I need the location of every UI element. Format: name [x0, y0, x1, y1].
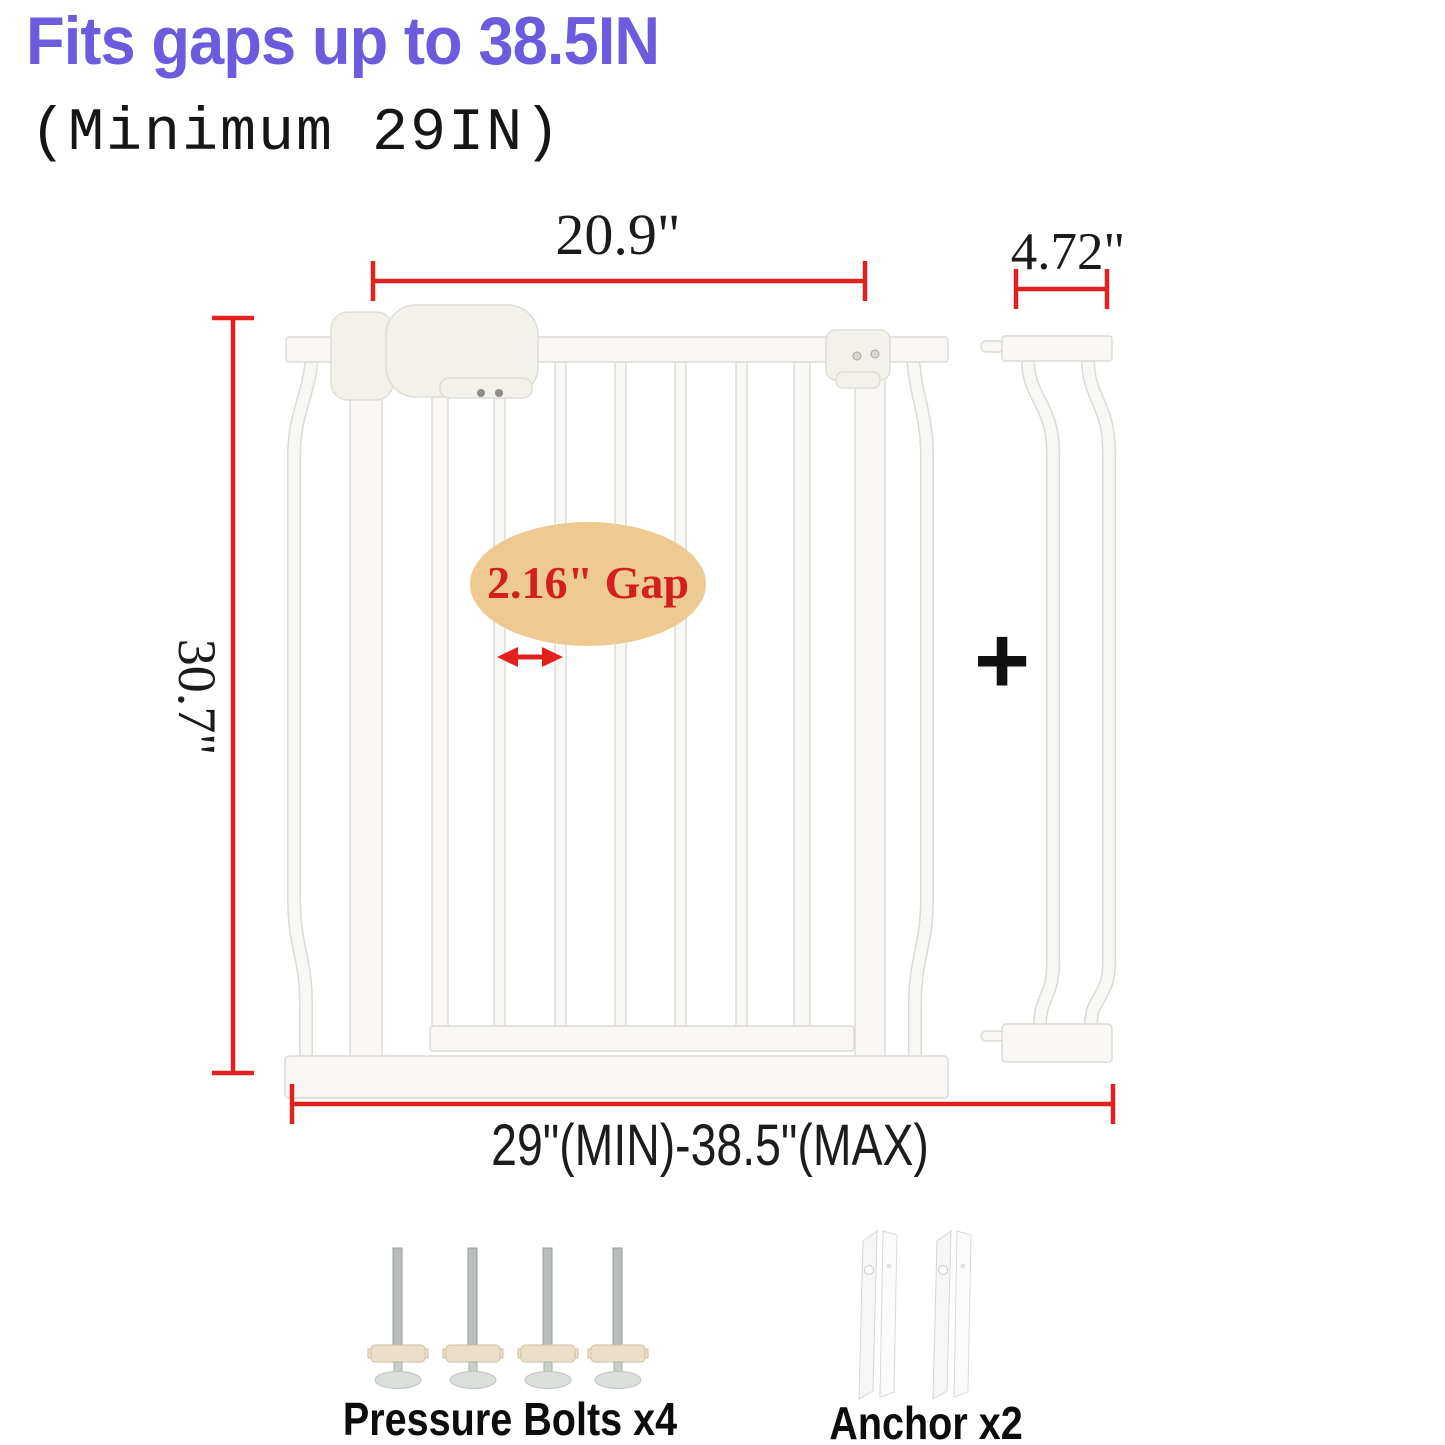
gate-hinge-assembly [826, 330, 890, 388]
extension-width-label: 4.72" [988, 222, 1148, 282]
subheadline: (Minimum 29IN) [30, 100, 562, 168]
gate-bottom-rail [285, 1056, 948, 1098]
door-bottom-rail [430, 1026, 854, 1051]
latch-screw [477, 389, 485, 397]
anchor-bracket-icon [859, 1231, 897, 1399]
latch-handle-lip [440, 378, 532, 398]
pressure-bolt-icon [588, 1248, 648, 1389]
gate-dimension-infographic: Fits gaps up to 38.5IN (Minimum 29IN) 20… [0, 0, 1445, 1445]
gap-double-arrow-icon [497, 647, 563, 667]
anchors-label: Anchor x2 [797, 1396, 1055, 1445]
door-bar [736, 358, 747, 1030]
pressure-bolt-icon [518, 1248, 578, 1389]
extension-top-rail [1002, 336, 1112, 361]
pressure-bolt-icon [368, 1248, 428, 1389]
gate-right-wall-bar [913, 348, 927, 1060]
hinge-screw [871, 350, 879, 358]
safety-gate-illustration [285, 305, 948, 1098]
headline: Fits gaps up to 38.5IN [26, 2, 659, 80]
door-bar [555, 358, 566, 1030]
gate-height-label: 30.7" [166, 639, 228, 756]
hinge-tab [836, 372, 880, 388]
pressure-bolts-label: Pressure Bolts x4 [338, 1392, 682, 1445]
gate-left-wall-bar [294, 348, 312, 1060]
extension-top-peg [981, 341, 1004, 352]
anchor-bracket-icon [933, 1231, 971, 1399]
pressure-bolt-icon [443, 1248, 503, 1389]
door-left-stile [432, 358, 448, 1034]
door-bar [615, 358, 626, 1030]
gate-latch-assembly [331, 305, 538, 400]
pressure-bolts-illustration [368, 1248, 648, 1389]
bar-gap-label: 2.16" Gap [468, 556, 708, 609]
extension-bar [1088, 360, 1109, 1024]
latch-clamp [331, 312, 393, 400]
extension-bottom-rail [1002, 1024, 1112, 1062]
latch-screw [495, 389, 503, 397]
gate-left-frame-post [350, 356, 382, 1062]
extension-bottom-peg [981, 1031, 1004, 1041]
anchors-illustration [859, 1231, 971, 1399]
gate-right-frame-post [855, 356, 885, 1062]
door-bar [675, 358, 686, 1030]
fit-range-label: 29"(MIN)-38.5"(MAX) [426, 1112, 994, 1179]
gate-door-panel [430, 358, 854, 1051]
gate-width-label: 20.9" [468, 201, 768, 268]
plus-icon: + [952, 606, 1052, 716]
door-right-stile [794, 358, 810, 1034]
hinge-screw [853, 352, 861, 360]
door-bar [494, 358, 505, 1030]
